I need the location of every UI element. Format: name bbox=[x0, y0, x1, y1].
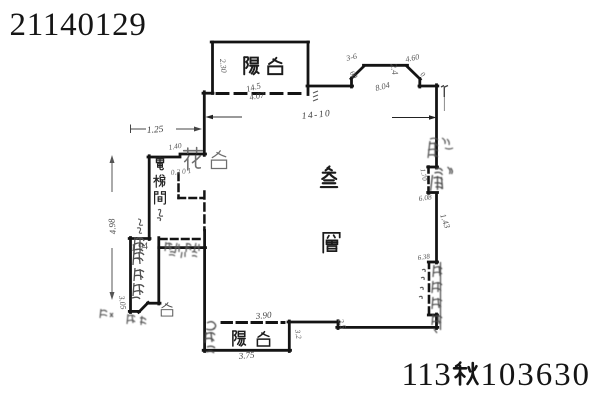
svg-text:103630: 103630 bbox=[481, 357, 591, 393]
svg-text:21140129: 21140129 bbox=[10, 7, 147, 43]
svg-text:2.30: 2.30 bbox=[218, 58, 228, 73]
svg-text:8.04: 8.04 bbox=[374, 79, 392, 92]
svg-text:3.2: 3.2 bbox=[293, 328, 304, 340]
svg-text:1.70: 1.70 bbox=[419, 168, 429, 182]
svg-text:1.94: 1.94 bbox=[130, 241, 149, 254]
svg-text:3-6: 3-6 bbox=[344, 52, 358, 64]
svg-text:0.2 0 1: 0.2 0 1 bbox=[170, 166, 191, 177]
svg-text:4.07: 4.07 bbox=[249, 89, 266, 102]
svg-text:6.08: 6.08 bbox=[418, 192, 432, 203]
svg-text:1.43: 1.43 bbox=[438, 212, 452, 229]
svg-text:1.25: 1.25 bbox=[147, 125, 165, 136]
svg-text:3.75: 3.75 bbox=[237, 350, 255, 361]
svg-text:2.4: 2.4 bbox=[389, 63, 401, 76]
svg-text:113: 113 bbox=[402, 357, 452, 393]
svg-text:3.05: 3.05 bbox=[117, 294, 128, 310]
svg-text:1.40: 1.40 bbox=[168, 141, 183, 152]
svg-text:4.98: 4.98 bbox=[106, 218, 118, 235]
svg-text:4.60: 4.60 bbox=[405, 52, 421, 64]
svg-text:3.90: 3.90 bbox=[254, 310, 272, 321]
svg-text:6.38: 6.38 bbox=[417, 252, 431, 262]
svg-text:14-10: 14-10 bbox=[301, 109, 332, 122]
